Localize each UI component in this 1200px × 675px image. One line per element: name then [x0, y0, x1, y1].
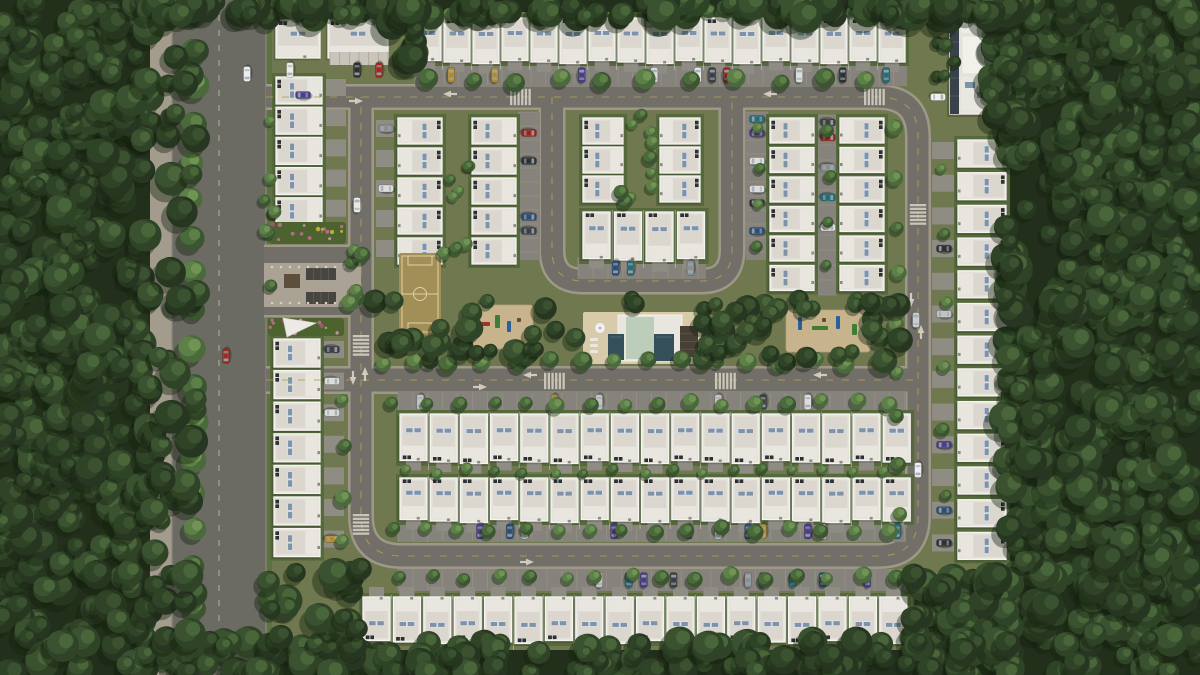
solar-panel — [864, 241, 869, 248]
tree-canopy-highlight — [17, 597, 28, 608]
solar-panel — [897, 428, 904, 433]
tree-canopy-highlight — [761, 465, 766, 470]
crosswalk-stripe — [353, 514, 369, 516]
tree-canopy-highlight — [118, 453, 131, 466]
house-front-section — [662, 120, 673, 141]
tree-canopy-highlight — [499, 570, 505, 576]
tree-canopy-highlight — [116, 612, 127, 623]
car-rear-glass — [671, 583, 676, 585]
solar-panel — [648, 491, 655, 496]
tree-canopy-highlight — [745, 324, 754, 333]
car-rear-glass — [913, 323, 918, 325]
tree-canopy-highlight — [864, 73, 872, 81]
car-roof — [448, 73, 454, 78]
tree-canopy-highlight — [768, 348, 776, 356]
flower-patch — [321, 228, 324, 231]
tree-canopy-highlight — [896, 459, 903, 466]
solar-panel — [505, 490, 512, 495]
house-front-section — [609, 599, 631, 612]
solar-panel — [682, 190, 687, 197]
ac-unit — [695, 126, 698, 129]
car-windshield — [752, 228, 755, 233]
tree-canopy-highlight — [943, 230, 948, 235]
crosswalk-stripe — [544, 373, 546, 389]
house-front-section — [960, 371, 973, 393]
solar-panel — [829, 429, 836, 434]
arrow-stem — [530, 374, 537, 376]
tree-canopy-highlight — [734, 304, 743, 313]
solar-panel — [535, 491, 542, 496]
crosswalk-stripe — [353, 533, 369, 535]
ac-unit — [710, 480, 713, 483]
tree-canopy-highlight — [65, 14, 75, 24]
car-rear-glass — [947, 246, 949, 251]
car-windshield — [746, 575, 751, 578]
entry-door — [317, 356, 320, 359]
car — [804, 392, 813, 409]
house-front-section — [620, 48, 641, 60]
car-roof — [942, 540, 947, 546]
solar-panel — [468, 621, 475, 626]
tree-canopy-highlight — [99, 142, 114, 157]
car — [818, 192, 835, 201]
house-front-section — [662, 149, 673, 170]
tree-canopy-highlight — [645, 470, 650, 475]
ac-unit — [622, 214, 625, 217]
tree-canopy-highlight — [856, 395, 863, 402]
solar-panel — [738, 429, 745, 434]
solar-panel — [288, 385, 293, 392]
solar-panel — [288, 409, 293, 416]
entry-door — [417, 517, 420, 520]
flower-patch — [272, 321, 275, 324]
ac-unit — [861, 480, 864, 483]
ac-unit — [403, 456, 406, 459]
car-windshield — [298, 92, 301, 97]
house-front-section — [852, 47, 873, 58]
solar-panel — [565, 491, 572, 496]
ac-unit — [879, 121, 882, 124]
ac-unit — [474, 211, 477, 214]
car-windshield — [805, 534, 810, 537]
house-front-section — [960, 437, 973, 459]
ac-unit — [276, 347, 279, 350]
ac-unit — [695, 121, 698, 124]
crosswalk-stripe — [734, 373, 736, 389]
tree-canopy-highlight — [104, 391, 115, 402]
tree-canopy-highlight — [109, 224, 121, 236]
car-roof — [796, 73, 802, 78]
crosswalk-stripe — [719, 373, 721, 389]
tree-canopy-highlight — [43, 579, 55, 591]
car-windshield — [507, 534, 512, 537]
ac-unit — [474, 151, 477, 154]
car-windshield — [752, 116, 755, 121]
solar-panel — [795, 623, 802, 628]
ac-unit — [879, 239, 882, 242]
tree-canopy-highlight — [868, 295, 877, 304]
house-front-section — [446, 48, 467, 60]
ac-unit — [830, 459, 833, 462]
car — [243, 64, 252, 81]
car-windshield — [941, 94, 944, 99]
tree-canopy-highlight — [37, 117, 48, 128]
ac-unit — [772, 214, 775, 217]
car-windshield — [884, 70, 889, 73]
entry-door — [719, 459, 722, 462]
tree-canopy-highlight — [943, 362, 949, 368]
entry-door — [895, 59, 898, 62]
house-front-section — [614, 507, 636, 518]
tree-canopy-highlight — [829, 172, 835, 178]
solar-panel — [678, 490, 685, 495]
house-front-section — [794, 48, 815, 60]
solar-panel — [984, 154, 989, 161]
entry-door — [805, 597, 808, 600]
flower-patch — [303, 224, 306, 227]
plaza-bollard — [334, 302, 337, 305]
car-roof — [628, 266, 634, 271]
crosswalk-stripe — [871, 89, 873, 105]
house-front-section — [825, 508, 847, 520]
tree-canopy-highlight — [59, 634, 74, 649]
car-rear-glass — [933, 94, 935, 99]
solar-panel — [603, 31, 610, 36]
car-rear-glass — [805, 397, 810, 399]
entry-door — [811, 193, 814, 196]
tree-canopy-highlight — [438, 321, 446, 329]
crosswalk-stripe — [883, 89, 885, 105]
flower-patch — [277, 238, 280, 241]
tree-canopy-highlight — [85, 295, 93, 303]
solar-panel — [984, 448, 989, 455]
ac-unit — [879, 273, 882, 276]
solar-panel — [984, 146, 989, 153]
solar-panel — [290, 83, 295, 90]
entry-door — [958, 157, 961, 160]
entry-door — [562, 597, 565, 600]
solar-panel — [864, 249, 869, 256]
driveway — [932, 338, 956, 355]
house-front-section — [765, 47, 786, 58]
ac-unit — [879, 155, 882, 158]
entry-door — [471, 597, 474, 600]
tree-canopy-highlight — [426, 71, 435, 80]
ac-unit — [796, 480, 799, 483]
car-roof — [301, 92, 306, 98]
car-roof — [826, 195, 831, 201]
entry-door — [319, 94, 322, 97]
ac-unit — [772, 151, 775, 154]
tree-canopy-highlight — [82, 414, 95, 427]
tree-canopy-highlight — [79, 186, 91, 198]
tree-canopy-highlight — [424, 523, 430, 529]
solar-panel — [527, 491, 534, 496]
entry-door — [958, 516, 961, 519]
car-rear-glass — [915, 465, 920, 467]
tree-canopy-highlight — [82, 5, 93, 16]
car-roof — [384, 186, 389, 192]
entry-door — [809, 459, 812, 462]
solar-panel — [712, 623, 719, 628]
solar-panel — [772, 622, 779, 627]
tree-canopy-highlight — [455, 244, 461, 250]
solar-panel — [748, 32, 755, 37]
tree-canopy-highlight — [493, 467, 498, 472]
house-front-section — [735, 508, 757, 520]
tree-canopy-highlight — [37, 618, 47, 628]
car-roof — [376, 68, 382, 73]
car — [378, 125, 395, 134]
solar-panel — [837, 429, 844, 434]
entry-door — [518, 58, 521, 61]
tree-canopy-highlight — [486, 296, 493, 303]
flower-patch — [325, 230, 329, 234]
ac-unit — [649, 459, 652, 462]
tree-canopy-highlight — [888, 526, 895, 533]
solar-panel — [422, 162, 427, 169]
house-front-section — [502, 180, 514, 201]
house-front-section — [821, 599, 843, 611]
house-front-section — [591, 47, 612, 58]
plaza-bollard — [325, 266, 328, 269]
car — [837, 67, 846, 84]
car-rear-glass — [628, 263, 633, 265]
ac-unit — [276, 532, 279, 535]
tree-canopy-highlight — [525, 398, 531, 404]
tree-canopy-highlight — [354, 286, 360, 292]
car — [928, 91, 945, 100]
house-front-section — [457, 599, 479, 611]
tree-canopy-highlight — [632, 569, 638, 575]
umbrella-pole — [599, 327, 601, 329]
solar-panel — [557, 491, 564, 496]
car-windshield — [688, 271, 693, 274]
solar-panel — [783, 249, 788, 256]
house-front-section — [426, 599, 448, 612]
solar-panel — [290, 152, 295, 159]
tree-canopy-highlight — [826, 126, 832, 132]
solar-panel — [290, 182, 295, 189]
ac-unit — [494, 480, 497, 483]
entry-door — [398, 164, 401, 167]
ac-unit — [685, 214, 688, 217]
car-rear-glass — [823, 120, 825, 125]
tree-canopy-highlight — [192, 521, 202, 531]
tree-canopy-highlight — [269, 117, 274, 122]
solar-panel — [864, 190, 869, 197]
house-front-section — [960, 142, 973, 164]
solar-panel — [984, 318, 989, 325]
car-rear-glass — [524, 130, 526, 135]
car-roof — [755, 186, 760, 192]
solar-panel — [595, 152, 600, 159]
house-front-section — [855, 506, 877, 517]
solar-panel — [414, 428, 421, 433]
ac-unit — [585, 179, 588, 182]
solar-panel — [864, 220, 869, 227]
driveway-stub — [430, 587, 445, 597]
ac-unit — [772, 155, 775, 158]
tree-canopy-highlight — [700, 316, 709, 325]
ac-unit — [433, 457, 436, 460]
site-plan-aerial-render — [0, 0, 1200, 675]
solar-panel — [377, 621, 384, 626]
solar-panel — [678, 428, 685, 433]
solar-panel — [783, 123, 788, 130]
solar-panel — [889, 491, 896, 496]
ac-unit — [553, 636, 556, 639]
house-front-section — [639, 599, 661, 611]
car-windshield — [710, 70, 715, 73]
entry-door — [692, 58, 695, 61]
driveway-stub — [399, 587, 414, 597]
driveway-stub — [551, 587, 566, 597]
solar-panel — [984, 481, 989, 488]
car-windshield — [354, 73, 359, 76]
tree-canopy-highlight — [57, 439, 69, 451]
entry-door — [840, 520, 843, 523]
arrow-stem — [450, 93, 457, 95]
solar-panel — [288, 354, 293, 361]
solar-panel — [719, 31, 726, 36]
car-rear-glass — [244, 69, 249, 71]
house-front-section — [502, 150, 514, 171]
car-roof — [287, 68, 293, 73]
solar-panel — [497, 428, 504, 433]
solar-panel — [682, 132, 687, 139]
entry-door — [447, 518, 450, 521]
entry-door — [694, 256, 697, 259]
tree-canopy-highlight — [573, 330, 582, 339]
tree-canopy-highlight — [757, 124, 762, 129]
aerial-photo-canvas — [0, 0, 1200, 675]
driveway — [932, 142, 956, 159]
entry-door — [958, 189, 961, 192]
tree-canopy-highlight — [109, 66, 118, 75]
driveway-stub — [703, 587, 718, 597]
solar-panel — [587, 490, 594, 495]
tree-canopy-highlight — [96, 325, 110, 339]
tree-canopy-highlight — [127, 563, 139, 575]
tree-canopy-highlight — [51, 87, 61, 97]
plaza-bollard — [325, 302, 328, 305]
ac-unit — [474, 186, 477, 189]
tree-canopy-highlight — [643, 71, 652, 80]
ac-unit — [675, 456, 678, 459]
solar-panel — [643, 621, 650, 626]
tree-canopy-highlight — [85, 221, 96, 232]
entry-door — [620, 163, 623, 166]
entry-door — [620, 134, 623, 137]
ac-unit — [649, 480, 652, 483]
entry-door — [623, 597, 626, 600]
crosswalk-stripe — [910, 219, 926, 221]
solar-panel — [290, 143, 295, 150]
car-roof — [527, 214, 532, 220]
tree-canopy-highlight — [786, 398, 793, 405]
tree-canopy-highlight — [543, 300, 553, 310]
car-windshield — [287, 73, 292, 76]
driveway — [932, 404, 956, 421]
solar-panel — [288, 440, 293, 447]
ac-unit — [437, 211, 440, 214]
playground-equipment — [852, 324, 857, 335]
solar-panel — [833, 621, 840, 626]
house-front-section — [502, 120, 514, 141]
tree-canopy-highlight — [341, 492, 349, 500]
ac-unit — [585, 184, 588, 187]
tree-canopy-highlight — [458, 398, 465, 405]
car-windshield — [335, 347, 338, 352]
solar-panel — [716, 491, 723, 496]
solar-panel — [889, 428, 896, 433]
tree-canopy-highlight — [734, 71, 742, 79]
car-roof — [805, 400, 811, 405]
plaza-bollard — [316, 302, 319, 305]
crosswalk-stripe — [353, 521, 369, 523]
car-roof — [384, 126, 389, 132]
tree-canopy-highlight — [953, 57, 959, 63]
tree-canopy-highlight — [640, 110, 646, 116]
ac-unit — [830, 480, 833, 483]
ac-unit — [524, 457, 527, 460]
house-front-section — [502, 210, 514, 231]
house-front-section — [736, 49, 757, 61]
solar-panel — [595, 161, 600, 168]
entry-door — [513, 224, 516, 227]
flower-patch — [270, 222, 274, 226]
entry-door — [447, 459, 450, 462]
car-rear-glass — [418, 397, 423, 399]
tree-canopy-highlight — [125, 269, 135, 279]
tree-canopy-highlight — [360, 249, 367, 256]
car-roof — [330, 378, 335, 384]
ac-unit — [1001, 176, 1004, 179]
entry-door — [477, 520, 480, 523]
solar-panel — [859, 428, 866, 433]
house-front-section — [960, 339, 973, 361]
crosswalk-stripe — [353, 342, 369, 344]
solar-panel — [681, 622, 688, 627]
flower-patch — [291, 232, 295, 236]
driveway-stub — [795, 587, 810, 597]
tree-canopy-highlight — [862, 569, 869, 576]
tree-canopy-highlight — [720, 314, 730, 324]
plaza-bollard — [334, 266, 337, 269]
car-roof — [883, 73, 889, 78]
entry-door — [598, 517, 601, 520]
car-windshield — [579, 70, 584, 73]
car-roof — [330, 536, 335, 542]
ac-unit — [494, 456, 497, 459]
ac-unit — [800, 480, 803, 483]
house-front-section — [960, 306, 973, 328]
car — [612, 258, 621, 275]
house-front-section — [800, 238, 812, 258]
ac-unit — [584, 456, 587, 459]
entry-door — [303, 55, 306, 58]
car — [322, 407, 339, 416]
tree-canopy-highlight — [399, 336, 408, 345]
entry-door — [477, 461, 480, 464]
ac-unit — [401, 637, 404, 640]
car-rear-glass — [716, 397, 721, 399]
crosswalk-stripe — [559, 373, 561, 389]
car-windshield — [381, 126, 384, 131]
solar-panel — [686, 428, 693, 433]
solar-panel — [288, 480, 293, 487]
